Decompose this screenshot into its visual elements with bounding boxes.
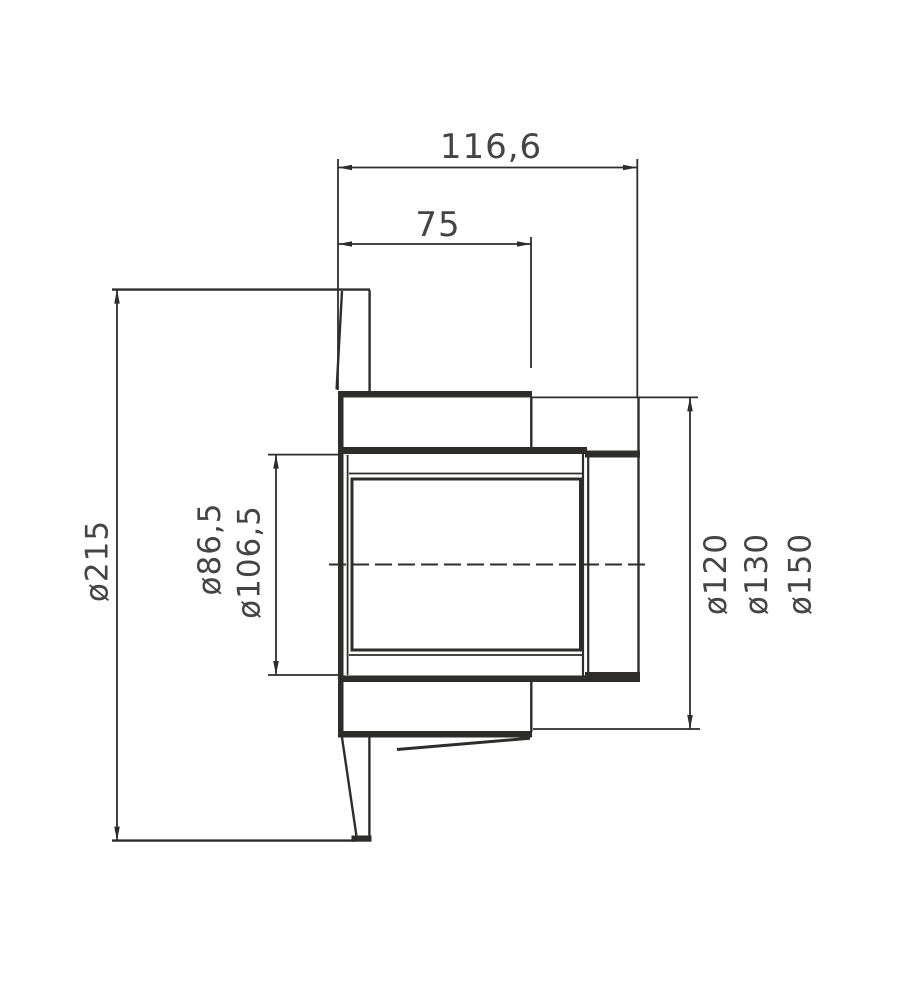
spigot-diameter-150-label: ø150	[783, 533, 819, 615]
inner-diameter-106-label: ø106,5	[232, 505, 268, 619]
body-upper-band	[338, 447, 587, 454]
valve-section-drawing: 116,6 75 ø215 ø86,5 ø106,5	[0, 0, 907, 987]
inner-diameter-86-label: ø86,5	[192, 503, 228, 596]
overall-depth-label: 116,6	[440, 127, 542, 167]
insertion-depth-label: 75	[415, 205, 460, 245]
dimension-insertion-depth: 75	[338, 205, 531, 368]
spigot-diameter-130-label: ø130	[739, 533, 775, 615]
dimension-overall-depth: 116,6	[338, 127, 637, 397]
body-upper-band-step	[585, 451, 640, 458]
extension-lines	[338, 159, 637, 397]
face-plate-top-wedge	[337, 290, 370, 391]
plate-diameter-label: ø215	[80, 520, 116, 602]
body-lower-band-step	[585, 672, 640, 678]
technical-drawing-page: 116,6 75 ø215 ø86,5 ø106,5	[0, 0, 907, 987]
body-top-edge	[338, 391, 532, 398]
valve-cross-section	[329, 290, 651, 842]
spring-clip	[397, 738, 530, 749]
dimension-inner-diameters: ø86,5 ø106,5	[192, 455, 340, 675]
body-bottom-edge	[338, 731, 532, 738]
spigot-diameter-120-label: ø120	[698, 533, 734, 615]
face-plate-bottom-wedge	[342, 738, 369, 841]
